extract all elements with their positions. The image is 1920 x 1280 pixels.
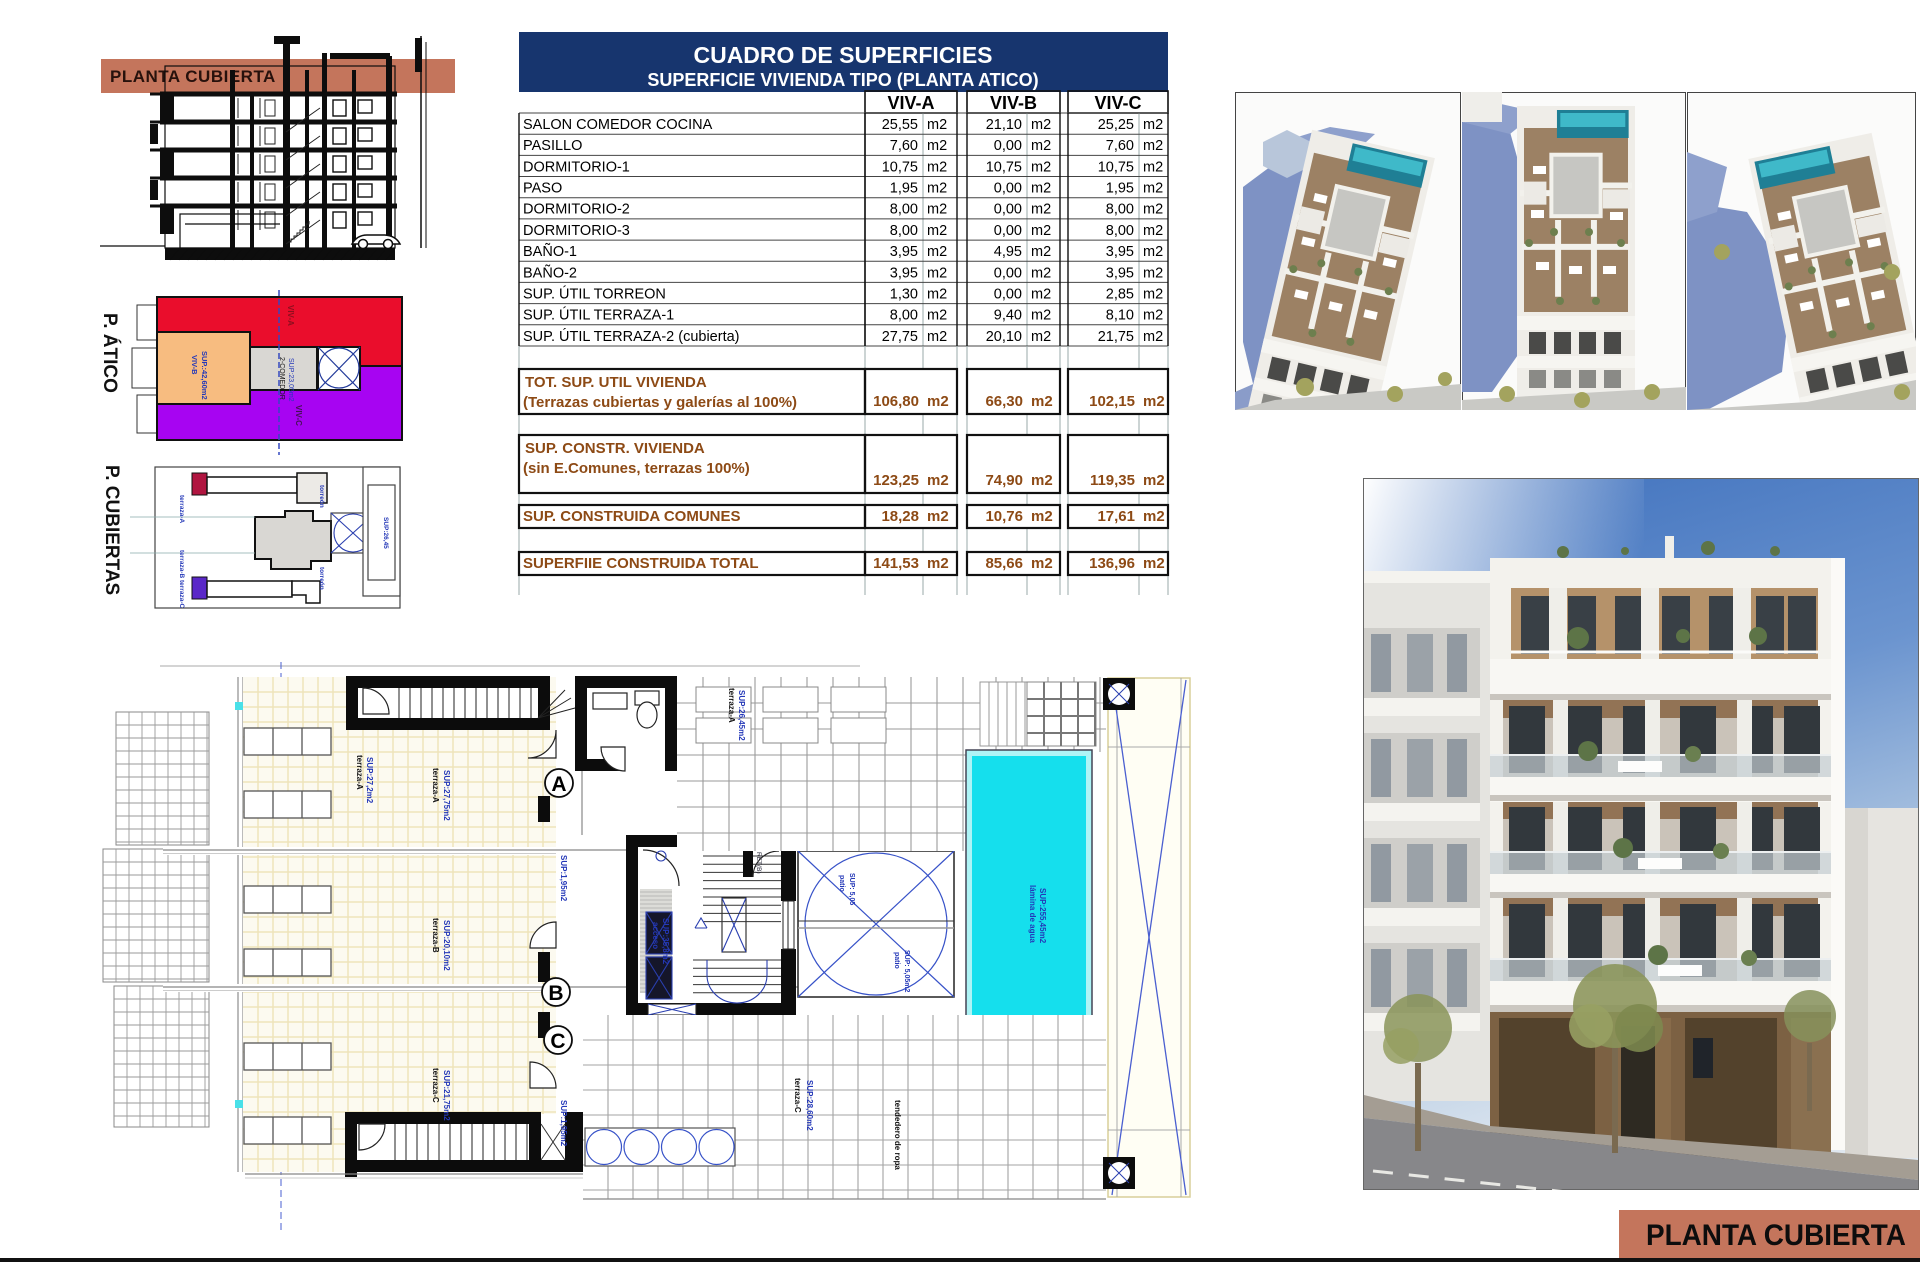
svg-text:BAÑO-2: BAÑO-2	[523, 264, 577, 281]
svg-text:3,95: 3,95	[1106, 265, 1134, 281]
svg-text:B: B	[548, 982, 563, 1005]
svg-text:m2: m2	[1031, 329, 1051, 345]
svg-text:25,55: 25,55	[882, 117, 918, 133]
svg-text:SUP:26,45m2: SUP:26,45m2	[737, 690, 746, 741]
svg-text:m2: m2	[1143, 265, 1163, 281]
svg-text:SUP: 5,05: SUP: 5,05	[848, 873, 855, 905]
svg-text:A: A	[551, 773, 566, 796]
svg-text:m2: m2	[927, 508, 949, 525]
svg-text:m2: m2	[1143, 472, 1165, 489]
svg-text:PASILLO: PASILLO	[523, 138, 582, 154]
svg-text:m2: m2	[927, 393, 949, 410]
svg-text:m2: m2	[1031, 265, 1051, 281]
svg-text:m2: m2	[927, 244, 947, 260]
svg-text:3,95: 3,95	[890, 244, 918, 260]
svg-text:66,30: 66,30	[985, 393, 1023, 410]
svg-text:acceso: acceso	[651, 922, 660, 949]
svg-text:SUP:255,45m2: SUP:255,45m2	[1038, 888, 1047, 944]
svg-text:m2: m2	[1143, 159, 1163, 175]
svg-text:m2: m2	[1031, 472, 1053, 489]
svg-text:0,00: 0,00	[994, 265, 1022, 281]
svg-text:m2: m2	[1031, 286, 1051, 302]
svg-text:m2: m2	[927, 223, 947, 239]
svg-text:m2: m2	[1031, 117, 1051, 133]
svg-text:10,75: 10,75	[882, 159, 918, 175]
svg-text:8,00: 8,00	[1106, 202, 1134, 218]
svg-text:m2: m2	[1031, 308, 1051, 324]
svg-text:SUP:28,60m2: SUP:28,60m2	[805, 1080, 814, 1131]
svg-text:m2: m2	[927, 181, 947, 197]
svg-text:m2: m2	[1143, 223, 1163, 239]
svg-text:27,75: 27,75	[882, 329, 918, 345]
svg-text:SUP. CONSTR. VIVIENDA: SUP. CONSTR. VIVIENDA	[525, 440, 705, 457]
svg-text:SUP:1,95m2: SUP:1,95m2	[559, 1100, 568, 1147]
svg-text:SUP:26,45: SUP:26,45	[382, 517, 389, 549]
svg-text:3,95: 3,95	[890, 265, 918, 281]
svg-text:PASO: PASO	[523, 181, 562, 197]
svg-text:terraza-A: terraza-A	[355, 755, 364, 790]
svg-text:10,75: 10,75	[986, 159, 1022, 175]
svg-text:SUP:27,75m2: SUP:27,75m2	[442, 770, 451, 821]
svg-text:SUP. ÚTIL TORREON: SUP. ÚTIL TORREON	[523, 285, 666, 302]
svg-text:20,10: 20,10	[986, 329, 1022, 345]
svg-text:BAÑO-1: BAÑO-1	[523, 243, 577, 260]
svg-text:terraza-B: terraza-B	[178, 550, 185, 578]
svg-text:17,61: 17,61	[1097, 508, 1135, 525]
svg-text:m2: m2	[1143, 117, 1163, 133]
svg-text:m2: m2	[1143, 329, 1163, 345]
svg-text:terraza-C: terraza-C	[793, 1078, 802, 1113]
svg-text:m2: m2	[1031, 244, 1051, 260]
svg-text:SUP:21,75m2: SUP:21,75m2	[442, 1070, 451, 1121]
svg-text:m2: m2	[1031, 202, 1051, 218]
svg-text:7,60: 7,60	[890, 138, 918, 154]
svg-text:(Terrazas cubiertas y galerías: (Terrazas cubiertas y galerías al 100%)	[523, 394, 797, 411]
svg-text:21,75: 21,75	[1098, 329, 1134, 345]
svg-text:VIV-C: VIV-C	[294, 405, 303, 426]
svg-text:(sin E.Comunes, terrazas 100%): (sin E.Comunes, terrazas 100%)	[523, 460, 750, 477]
svg-text:m2: m2	[1031, 181, 1051, 197]
svg-text:m2: m2	[1143, 555, 1165, 572]
svg-text:136,96: 136,96	[1089, 555, 1135, 572]
svg-text:SUP. ÚTIL TERRAZA-2 (cubierta): SUP. ÚTIL TERRAZA-2 (cubierta)	[523, 328, 740, 345]
svg-text:m2: m2	[1143, 393, 1165, 410]
svg-text:P. CUBIERTAS: P. CUBIERTAS	[101, 465, 122, 595]
svg-text:SUP:1,95m2: SUP:1,95m2	[559, 855, 568, 902]
svg-text:m2: m2	[1143, 244, 1163, 260]
svg-text:CUADRO DE SUPERFICIES: CUADRO DE SUPERFICIES	[693, 42, 992, 68]
svg-text:terraza-B: terraza-B	[431, 918, 440, 953]
svg-text:PLANTA CUBIERTA: PLANTA CUBIERTA	[110, 67, 276, 86]
svg-text:m2: m2	[1031, 138, 1051, 154]
svg-text:patio: patio	[838, 875, 845, 892]
svg-text:tendedero de ropa: tendedero de ropa	[893, 1100, 902, 1170]
svg-text:VIV-A: VIV-A	[887, 93, 934, 113]
svg-text:torreón: torreón	[318, 567, 325, 590]
svg-text:8,00: 8,00	[890, 308, 918, 324]
svg-text:SUP: 5,05m2: SUP: 5,05m2	[903, 950, 910, 993]
svg-text:SUP:20,10m2: SUP:20,10m2	[442, 920, 451, 971]
svg-text:torreón: torreón	[318, 485, 325, 508]
svg-text:patio: patio	[893, 952, 900, 969]
svg-text:0,00: 0,00	[994, 138, 1022, 154]
svg-text:8,10: 8,10	[1106, 308, 1134, 324]
svg-text:RET(B): RET(B)	[755, 852, 762, 874]
svg-text:106,80: 106,80	[873, 393, 919, 410]
svg-text:DORMITORIO-3: DORMITORIO-3	[523, 223, 630, 239]
svg-text:VIV-C: VIV-C	[1094, 93, 1141, 113]
svg-text:SUPERFICIE VIVIENDA TIPO (PLA: SUPERFICIE VIVIENDA TIPO (PLANTA ATICO)	[647, 70, 1038, 90]
svg-text:25,25: 25,25	[1098, 117, 1134, 133]
svg-text:0,00: 0,00	[994, 202, 1022, 218]
svg-text:m2: m2	[1143, 138, 1163, 154]
svg-text:m2: m2	[927, 472, 949, 489]
svg-text:2,85: 2,85	[1106, 286, 1134, 302]
svg-text:m2: m2	[927, 138, 947, 154]
svg-text:74,90: 74,90	[985, 472, 1023, 489]
svg-text:m2: m2	[1031, 508, 1053, 525]
svg-text:terraza-A: terraza-A	[431, 768, 440, 803]
svg-text:102,15: 102,15	[1089, 393, 1135, 410]
svg-text:m2: m2	[1143, 202, 1163, 218]
svg-text:SUP. CONSTRUIDA COMUNES: SUP. CONSTRUIDA COMUNES	[523, 508, 741, 525]
svg-text:SUP:35,8m2: SUP:35,8m2	[661, 918, 670, 965]
svg-text:SUP:27,2m2: SUP:27,2m2	[365, 757, 374, 804]
svg-text:0,00: 0,00	[994, 223, 1022, 239]
svg-text:1,30: 1,30	[890, 286, 918, 302]
svg-text:lámina de agua: lámina de agua	[1028, 885, 1037, 943]
svg-text:7,60: 7,60	[1106, 138, 1134, 154]
svg-text:SUPERFIIE CONSTRUIDA TOTAL: SUPERFIIE CONSTRUIDA TOTAL	[523, 555, 759, 572]
svg-text:terraza-C: terraza-C	[178, 580, 185, 608]
svg-text:terraza-A: terraza-A	[178, 495, 185, 523]
svg-text:VIV-B: VIV-B	[190, 355, 199, 375]
svg-text:terraza-A: terraza-A	[727, 688, 736, 723]
svg-text:m2: m2	[1031, 555, 1053, 572]
svg-text:C: C	[550, 1030, 565, 1053]
svg-text:8,00: 8,00	[1106, 223, 1134, 239]
svg-text:P. ÁTICO: P. ÁTICO	[99, 313, 121, 393]
svg-text:10,76: 10,76	[985, 508, 1023, 525]
svg-text:141,53: 141,53	[873, 555, 919, 572]
svg-text:m2: m2	[1143, 286, 1163, 302]
svg-text:10,75: 10,75	[1098, 159, 1134, 175]
svg-text:m2: m2	[1031, 223, 1051, 239]
svg-text:1,95: 1,95	[1106, 181, 1134, 197]
svg-text:21,10: 21,10	[986, 117, 1022, 133]
svg-text:m2: m2	[927, 308, 947, 324]
svg-text:DORMITORIO-2: DORMITORIO-2	[523, 202, 630, 218]
svg-text:m2: m2	[927, 117, 947, 133]
svg-text:8,00: 8,00	[890, 202, 918, 218]
svg-text:m2: m2	[927, 286, 947, 302]
svg-text:DORMITORIO-1: DORMITORIO-1	[523, 159, 630, 175]
svg-text:m2: m2	[1031, 393, 1053, 410]
svg-text:2-COMEDOR: 2-COMEDOR	[278, 357, 285, 400]
svg-text:VIV-A: VIV-A	[286, 305, 295, 326]
svg-text:m2: m2	[927, 202, 947, 218]
svg-text:m2: m2	[927, 555, 949, 572]
svg-text:terraza-C: terraza-C	[431, 1068, 440, 1103]
svg-text:1,95: 1,95	[890, 181, 918, 197]
svg-text:SUP.:42,60m2: SUP.:42,60m2	[200, 351, 209, 400]
svg-text:85,66: 85,66	[985, 555, 1023, 572]
svg-text:VIV-B: VIV-B	[990, 93, 1037, 113]
svg-text:m2: m2	[927, 159, 947, 175]
svg-text:SUP. ÚTIL TERRAZA-1: SUP. ÚTIL TERRAZA-1	[523, 307, 674, 324]
svg-text:0,00: 0,00	[994, 181, 1022, 197]
svg-text:m2: m2	[1143, 181, 1163, 197]
svg-text:119,35: 119,35	[1090, 472, 1135, 489]
svg-text:m2: m2	[1143, 308, 1163, 324]
svg-text:123,25: 123,25	[873, 472, 919, 489]
svg-text:m2: m2	[927, 265, 947, 281]
svg-text:9,40: 9,40	[994, 308, 1022, 324]
svg-text:m2: m2	[1031, 159, 1051, 175]
svg-text:m2: m2	[1143, 508, 1165, 525]
svg-text:0,00: 0,00	[994, 286, 1022, 302]
svg-text:4,95: 4,95	[994, 244, 1022, 260]
svg-text:SALON COMEDOR COCINA: SALON COMEDOR COCINA	[523, 117, 713, 133]
svg-text:m2: m2	[927, 329, 947, 345]
svg-text:8,00: 8,00	[890, 223, 918, 239]
svg-text:SUP:23,05m2: SUP:23,05m2	[287, 358, 294, 402]
svg-text:TOT. SUP. UTIL VIVIENDA: TOT. SUP. UTIL VIVIENDA	[525, 374, 707, 391]
svg-text:18,28: 18,28	[881, 508, 919, 525]
svg-text:3,95: 3,95	[1106, 244, 1134, 260]
